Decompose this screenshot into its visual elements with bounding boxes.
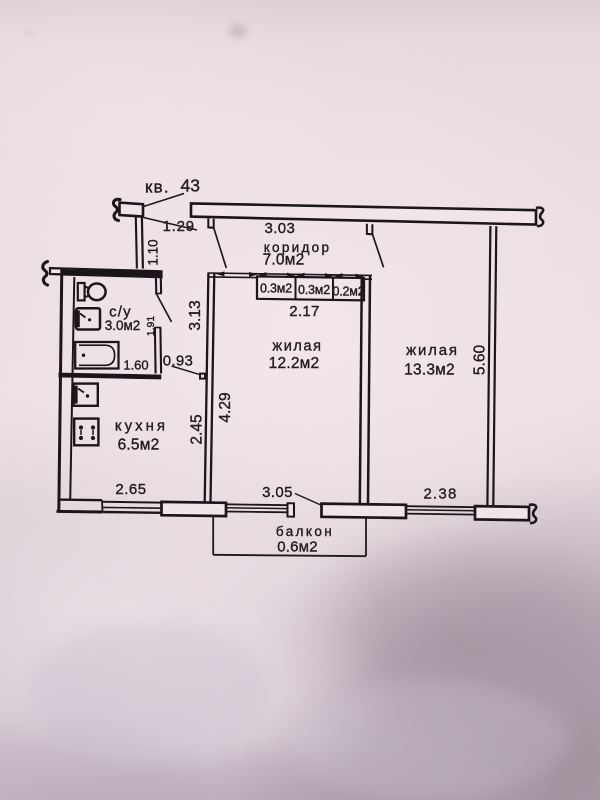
svg-text:0.6м2: 0.6м2 xyxy=(277,539,318,556)
svg-text:13.3м2: 13.3м2 xyxy=(404,362,455,379)
svg-text:балкон: балкон xyxy=(276,524,334,539)
svg-text:2.17: 2.17 xyxy=(289,303,319,320)
svg-text:7.0м2: 7.0м2 xyxy=(263,252,305,269)
svg-text:3.03: 3.03 xyxy=(265,220,296,237)
svg-text:3.0м2: 3.0м2 xyxy=(105,318,141,333)
svg-text:жилая: жилая xyxy=(406,342,459,359)
svg-text:0.3м2: 0.3м2 xyxy=(298,283,330,297)
svg-text:1.60: 1.60 xyxy=(123,358,148,373)
svg-text:2.45: 2.45 xyxy=(189,414,206,444)
svg-text:3.05: 3.05 xyxy=(262,484,293,501)
svg-text:кухня: кухня xyxy=(115,418,168,435)
svg-text:5.60: 5.60 xyxy=(472,345,489,376)
svg-text:0.3м2: 0.3м2 xyxy=(260,282,292,296)
svg-text:4.29: 4.29 xyxy=(217,392,234,422)
svg-text:1.10: 1.10 xyxy=(146,239,161,265)
svg-text:кв.: кв. xyxy=(145,178,170,197)
svg-text:2.65: 2.65 xyxy=(115,481,146,498)
svg-text:0.93: 0.93 xyxy=(163,353,193,370)
svg-text:43: 43 xyxy=(181,176,200,196)
svg-text:3.13: 3.13 xyxy=(187,300,204,330)
svg-text:6.5м2: 6.5м2 xyxy=(118,437,160,454)
svg-text:2.38: 2.38 xyxy=(424,486,458,503)
svg-text:12.2м2: 12.2м2 xyxy=(269,355,320,372)
svg-text:0.2м2: 0.2м2 xyxy=(333,285,365,299)
svg-text:1.29: 1.29 xyxy=(163,218,195,235)
svg-text:жилая: жилая xyxy=(272,339,322,355)
